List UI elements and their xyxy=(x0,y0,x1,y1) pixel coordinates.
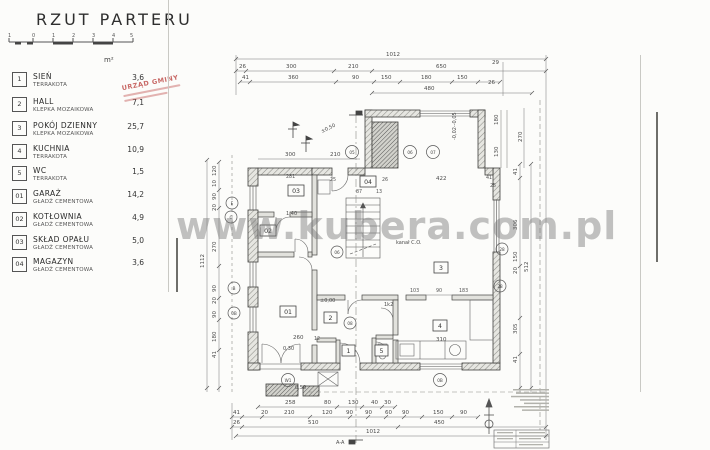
dim-label: 20 xyxy=(261,410,268,416)
dim-label: 60 xyxy=(385,410,392,416)
room-label: 5 xyxy=(380,348,384,355)
dim-label: 20 xyxy=(212,297,218,304)
dim-label: 25 xyxy=(330,177,336,183)
dim-label: 305 xyxy=(513,323,519,334)
marker-label: 07 xyxy=(430,150,436,155)
marker-label: B xyxy=(233,286,236,291)
dim-label: 422 xyxy=(436,176,447,182)
dim-label: 150 xyxy=(457,75,468,81)
dim-label: 260 xyxy=(293,335,304,341)
dim-label: 281 xyxy=(286,174,295,180)
dim-label: 41 xyxy=(242,75,249,81)
level-label: 0,50 xyxy=(295,385,306,391)
level-label: ±0,50 xyxy=(320,123,336,135)
dim-label: 26 xyxy=(382,177,388,183)
dim-label: 12 xyxy=(314,336,320,342)
dim-label: 90 xyxy=(352,75,359,81)
watermark: www.kubera.com.pl xyxy=(176,204,617,248)
level-label: ±0,00 xyxy=(320,298,335,304)
dim-label: 90 xyxy=(212,311,218,318)
room-label: 03 xyxy=(292,188,300,195)
dim-label: 80 xyxy=(324,400,331,406)
dim-label: 512 xyxy=(524,262,530,273)
room-label: 4 xyxy=(438,323,442,330)
marker-label: 0B xyxy=(231,311,237,316)
title-block xyxy=(494,389,549,448)
room-label: 04 xyxy=(364,179,372,186)
dim-label: 90 xyxy=(460,410,467,416)
dim-label: 90 xyxy=(365,410,372,416)
level-label: 0,30 xyxy=(283,346,294,352)
dim-label: 20 xyxy=(513,267,519,274)
room-label: 1 xyxy=(347,348,351,355)
dim-label: 310 xyxy=(436,337,447,343)
dim-label: 103 xyxy=(410,288,419,294)
dim-label: 26 xyxy=(233,420,240,426)
room-label: 3 xyxy=(439,265,443,272)
marker-label: 08 xyxy=(347,321,353,326)
dim-label: 183 xyxy=(459,288,468,294)
dim-label: 90 xyxy=(402,410,409,416)
north-arrow xyxy=(484,399,494,434)
dim-label: 150 xyxy=(513,251,519,262)
dim-label: 300 xyxy=(285,152,296,158)
dim-label: 26 xyxy=(488,80,495,86)
dim-label: 13 xyxy=(376,189,382,195)
dim-label: 210 xyxy=(330,152,341,158)
dim-label: 180 xyxy=(212,331,218,342)
dim-label: 210 xyxy=(348,64,359,70)
dim-label: 480 xyxy=(424,86,435,92)
dim-label: 150 xyxy=(381,75,392,81)
dim-label: 1012 xyxy=(366,429,380,435)
dim-label: 41 xyxy=(212,351,218,358)
marker-label: 0B xyxy=(437,378,443,383)
marker-label: 28 xyxy=(497,284,503,289)
marker-label: 05 xyxy=(349,150,355,155)
dim-label: 180 xyxy=(421,75,432,81)
marker-label: W1 xyxy=(285,378,292,383)
dim-label: 300 xyxy=(286,64,297,70)
dim-label: 270 xyxy=(518,131,524,142)
dim-label: 210 xyxy=(284,410,295,416)
dim-label: 29 xyxy=(492,60,499,66)
dim-label: 1112 xyxy=(200,254,206,268)
scanned-floor-plan-page: RZUT PARTERU 1 0 1 2 3 4 5 xyxy=(0,0,710,450)
section-label: A-A xyxy=(336,440,345,446)
dim-label: 360 xyxy=(288,75,299,81)
dim-label: 150 xyxy=(433,410,444,416)
dim-label: 180 xyxy=(494,114,500,125)
dim-label: 90 xyxy=(212,193,218,200)
dim-label: 40 xyxy=(371,400,378,406)
dim-label: 450 xyxy=(434,420,445,426)
dim-label: 41 xyxy=(513,356,519,363)
dim-label: 130 xyxy=(494,146,500,157)
dim-label: 41 xyxy=(486,175,492,181)
dim-label: 510 xyxy=(308,420,319,426)
dim-label: 30 xyxy=(384,400,391,406)
marker-label: 06 xyxy=(407,150,413,155)
dim-label: 90 xyxy=(436,288,442,294)
dim-label: 26 xyxy=(239,64,246,70)
dim-label: 120 xyxy=(212,165,218,176)
room-label: 2 xyxy=(329,315,333,322)
dim-label: 90 xyxy=(212,285,218,292)
dim-label: 41 xyxy=(513,168,519,175)
dim-label: 90 xyxy=(346,410,353,416)
dim-label: 25 xyxy=(490,183,496,189)
marker-label: 06 xyxy=(334,250,340,255)
room-label: 01 xyxy=(284,309,292,316)
dim-label: 1012 xyxy=(386,52,400,58)
dim-label: 120 xyxy=(322,410,333,416)
room-number-boxes: 03 04 02 01 1 5 2 3 4 xyxy=(260,176,448,356)
dim-label: 10 xyxy=(212,180,218,187)
section-and-benchmark-symbols xyxy=(288,111,363,444)
note-label: 1k2 xyxy=(384,302,393,308)
dim-label: 41 xyxy=(233,410,240,416)
dim-label: 650 xyxy=(436,64,447,70)
level-label: -0,02--0,05 xyxy=(452,112,458,140)
dim-label: 87 xyxy=(356,189,362,195)
dim-label: 258 xyxy=(285,400,296,406)
dim-label: 130 xyxy=(348,400,359,406)
